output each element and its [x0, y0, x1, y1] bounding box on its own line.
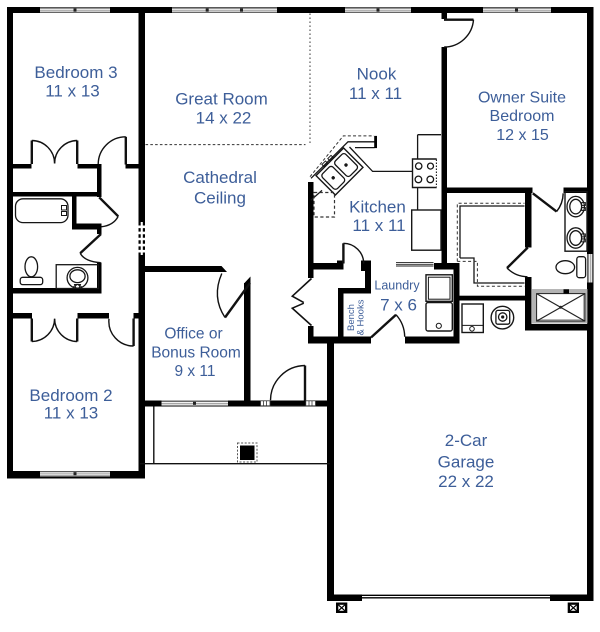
svg-text:11 x 13: 11 x 13: [44, 404, 99, 423]
svg-text:Nook: Nook: [357, 65, 397, 84]
svg-text:Bedroom 2: Bedroom 2: [29, 386, 112, 405]
svg-text:Ceiling: Ceiling: [194, 189, 246, 208]
svg-text:Laundry: Laundry: [374, 279, 420, 293]
svg-text:11 x 13: 11 x 13: [45, 82, 100, 101]
svg-text:2-Car: 2-Car: [445, 431, 488, 450]
svg-text:14 x 22: 14 x 22: [196, 109, 252, 128]
svg-text:Cathedral: Cathedral: [183, 168, 257, 187]
svg-text:Bonus Room: Bonus Room: [151, 345, 241, 362]
svg-text:11 x 11: 11 x 11: [349, 84, 402, 103]
svg-text:Office or: Office or: [164, 326, 222, 343]
svg-text:22 x 22: 22 x 22: [438, 472, 494, 491]
svg-text:Bedroom: Bedroom: [490, 108, 555, 125]
svg-text:7 x 6: 7 x 6: [380, 296, 417, 315]
svg-text:11 x 11: 11 x 11: [352, 216, 405, 235]
svg-text:& Hooks: & Hooks: [356, 299, 367, 335]
svg-text:12 x 15: 12 x 15: [496, 127, 549, 144]
svg-text:Owner Suite: Owner Suite: [478, 90, 566, 107]
svg-text:Great Room: Great Room: [175, 90, 268, 109]
svg-text:Bedroom 3: Bedroom 3: [34, 63, 117, 82]
svg-text:Kitchen: Kitchen: [349, 198, 406, 217]
svg-text:Garage: Garage: [438, 453, 495, 472]
svg-text:9 x 11: 9 x 11: [174, 363, 215, 380]
